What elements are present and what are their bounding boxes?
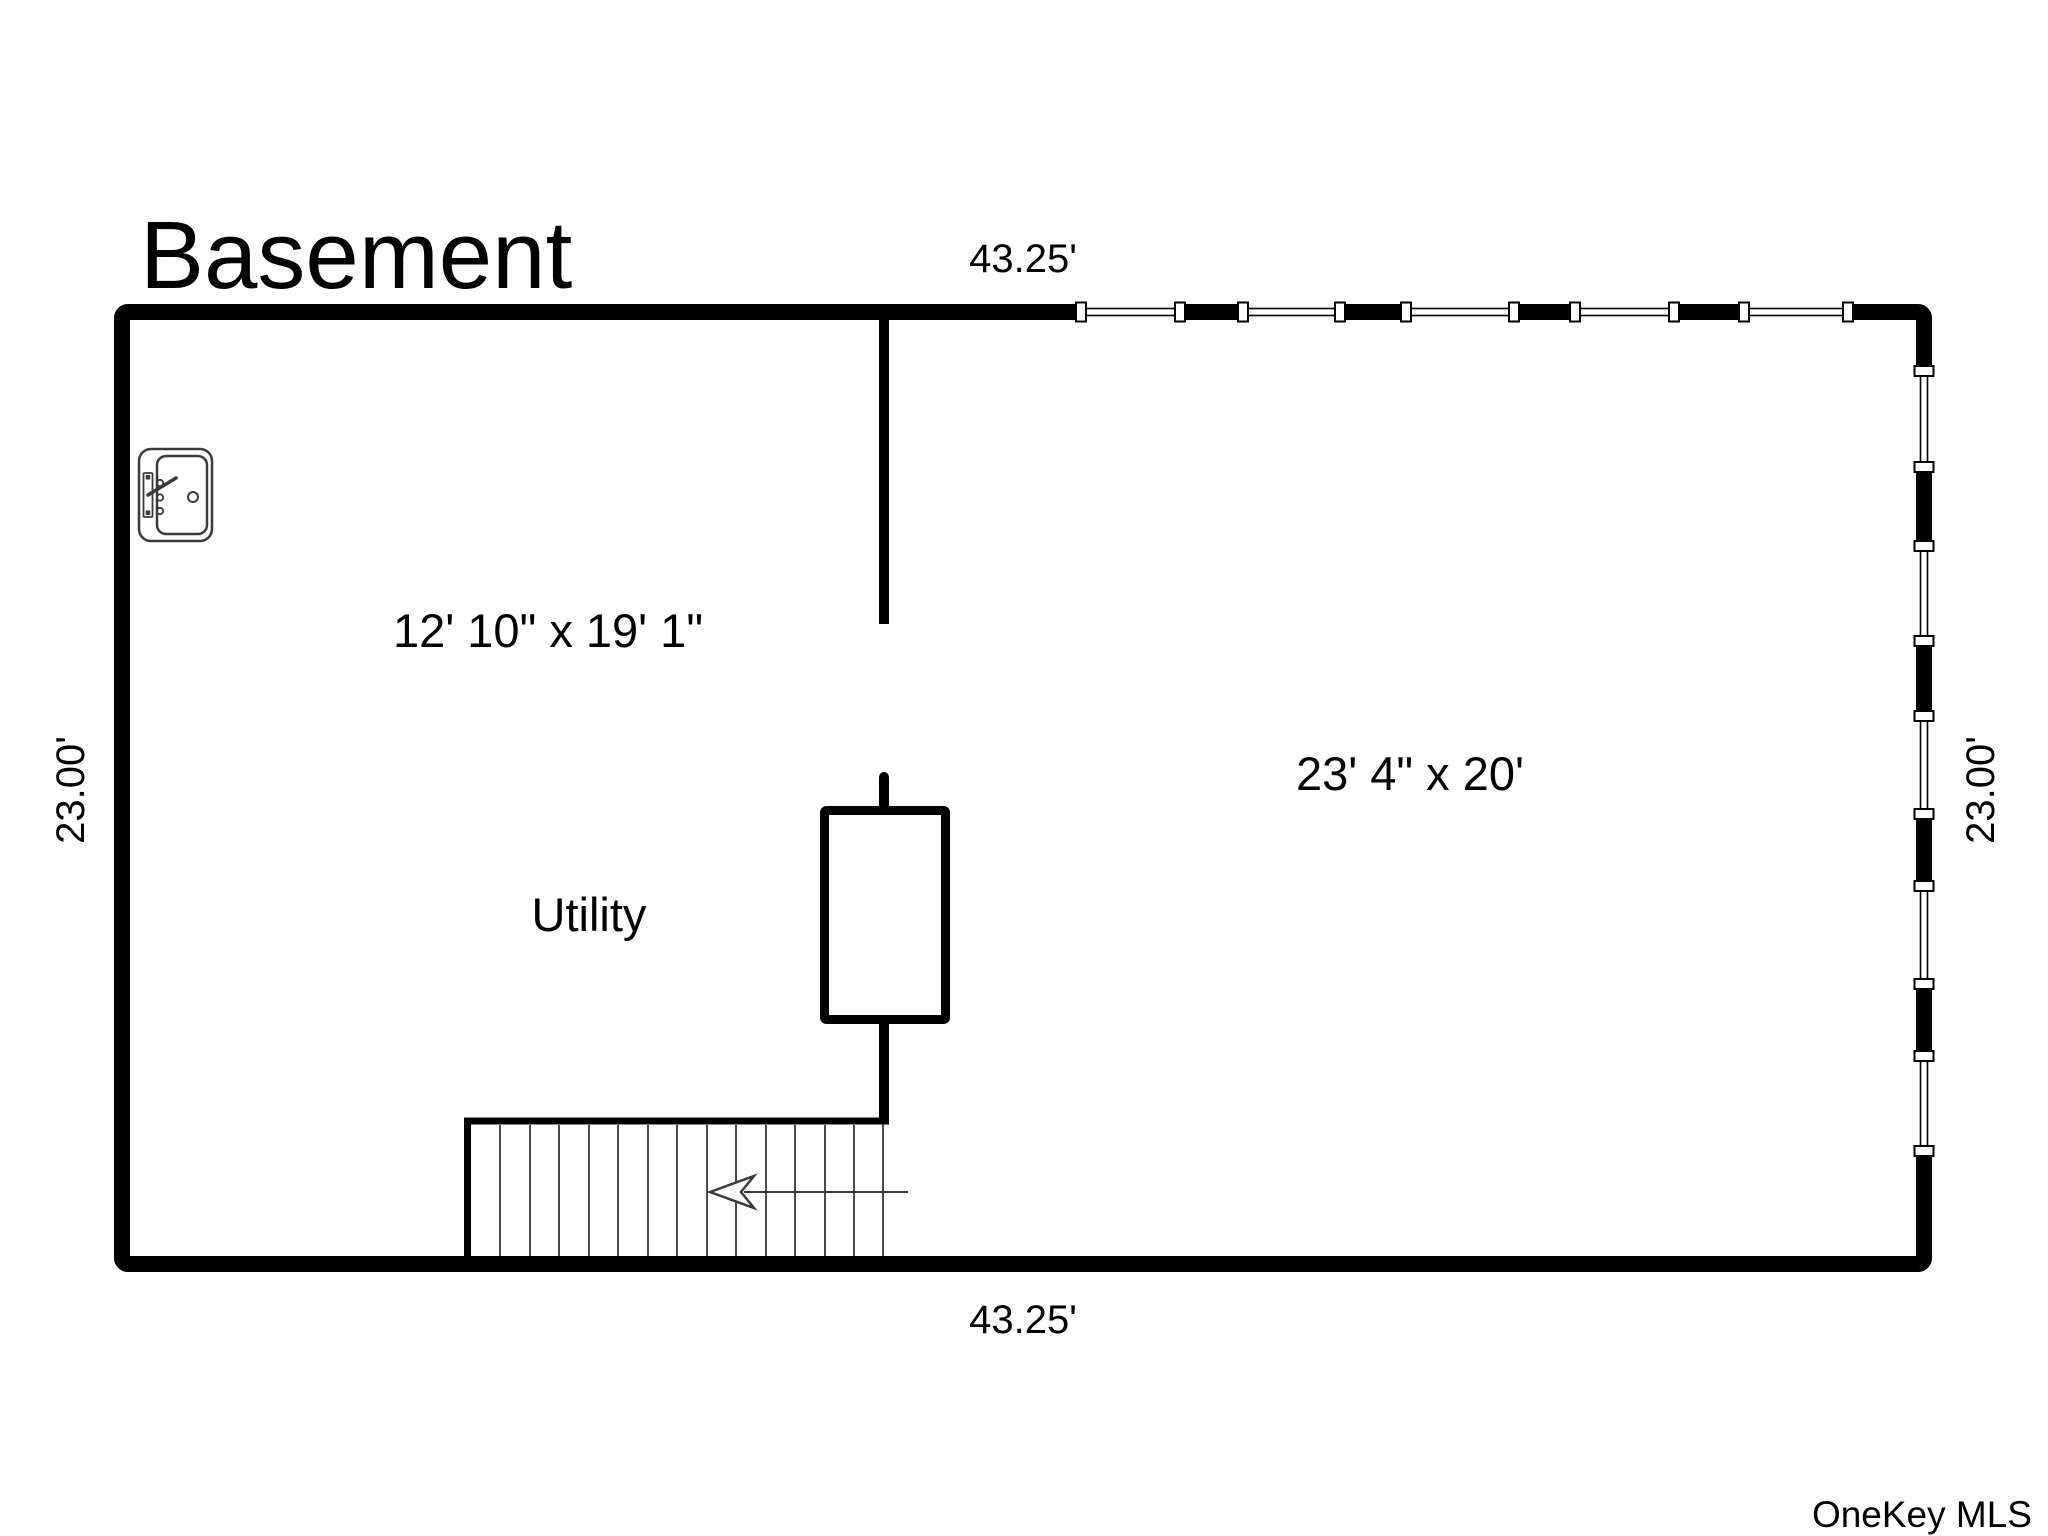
exterior-wall-outline — [122, 312, 1924, 1264]
exterior-walls — [122, 312, 1924, 1264]
window-icon — [1915, 540, 1934, 647]
dimension-top: 43.25' — [969, 237, 1077, 281]
stair-direction-arrow — [710, 1176, 908, 1208]
floor-plan-drawing: Basement 43.25' 43.25' 23.00' 23.00' 12'… — [0, 0, 2048, 1536]
watermark: OneKey MLS — [1812, 1494, 2032, 1535]
window-icon — [1915, 880, 1934, 990]
stairs — [464, 1118, 908, 1258]
dimension-right: 23.00' — [1959, 736, 2003, 844]
window-icon — [1075, 303, 1186, 322]
window-icon — [1915, 365, 1934, 473]
window-icon — [1915, 710, 1934, 820]
utility-room-label: Utility — [532, 888, 647, 941]
plan-title: Basement — [140, 202, 572, 309]
window-icon — [1237, 303, 1346, 322]
laundry-sink-icon — [139, 449, 212, 541]
floor-plan-page: Basement 43.25' 43.25' 23.00' 23.00' 12'… — [0, 0, 2048, 1536]
stair-treads — [500, 1124, 883, 1256]
dimension-left: 23.00' — [49, 736, 93, 844]
window-icon — [1738, 303, 1854, 322]
window-icon — [1569, 303, 1680, 322]
window-icon — [1915, 1050, 1934, 1157]
window-icon — [1400, 303, 1520, 322]
utility-closet-box — [825, 811, 946, 1020]
dimension-bottom: 43.25' — [969, 1298, 1077, 1342]
right-room-size-label: 23' 4" x 20' — [1296, 747, 1524, 800]
left-room-size-label: 12' 10" x 19' 1" — [393, 604, 703, 657]
